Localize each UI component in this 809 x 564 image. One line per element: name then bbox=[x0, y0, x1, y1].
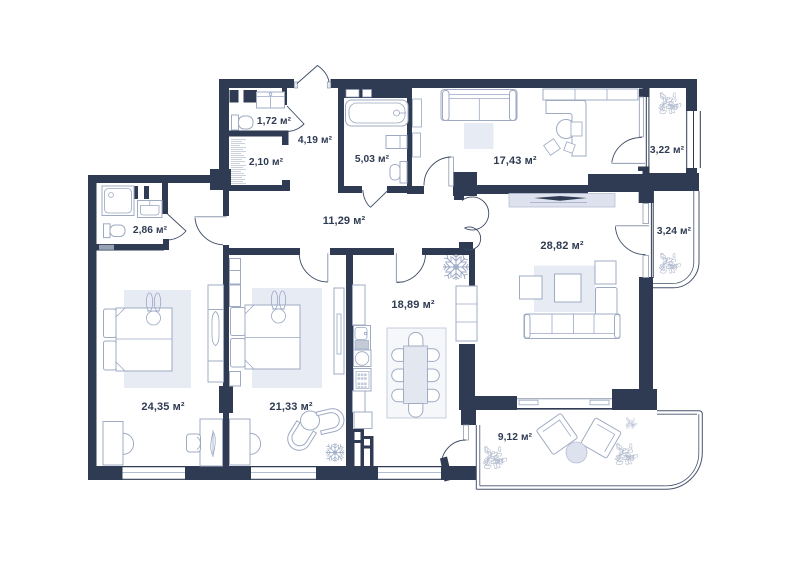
svg-text:24,35 м²: 24,35 м² bbox=[141, 401, 184, 413]
svg-text:17,43 м²: 17,43 м² bbox=[493, 155, 536, 167]
svg-text:3,24 м²: 3,24 м² bbox=[657, 226, 692, 237]
svg-text:9,12 м²: 9,12 м² bbox=[498, 432, 533, 443]
svg-text:1,72 м²: 1,72 м² bbox=[257, 116, 292, 127]
svg-text:4,19 м²: 4,19 м² bbox=[298, 135, 333, 146]
svg-text:2,86 м²: 2,86 м² bbox=[133, 225, 168, 236]
svg-text:18,89 м²: 18,89 м² bbox=[391, 299, 434, 311]
svg-text:28,82 м²: 28,82 м² bbox=[540, 240, 583, 252]
svg-text:11,29 м²: 11,29 м² bbox=[323, 215, 366, 227]
svg-text:2,10 м²: 2,10 м² bbox=[249, 157, 284, 168]
svg-text:5,03 м²: 5,03 м² bbox=[355, 154, 390, 165]
svg-text:3,22 м²: 3,22 м² bbox=[650, 145, 685, 156]
svg-text:21,33 м²: 21,33 м² bbox=[269, 401, 312, 413]
